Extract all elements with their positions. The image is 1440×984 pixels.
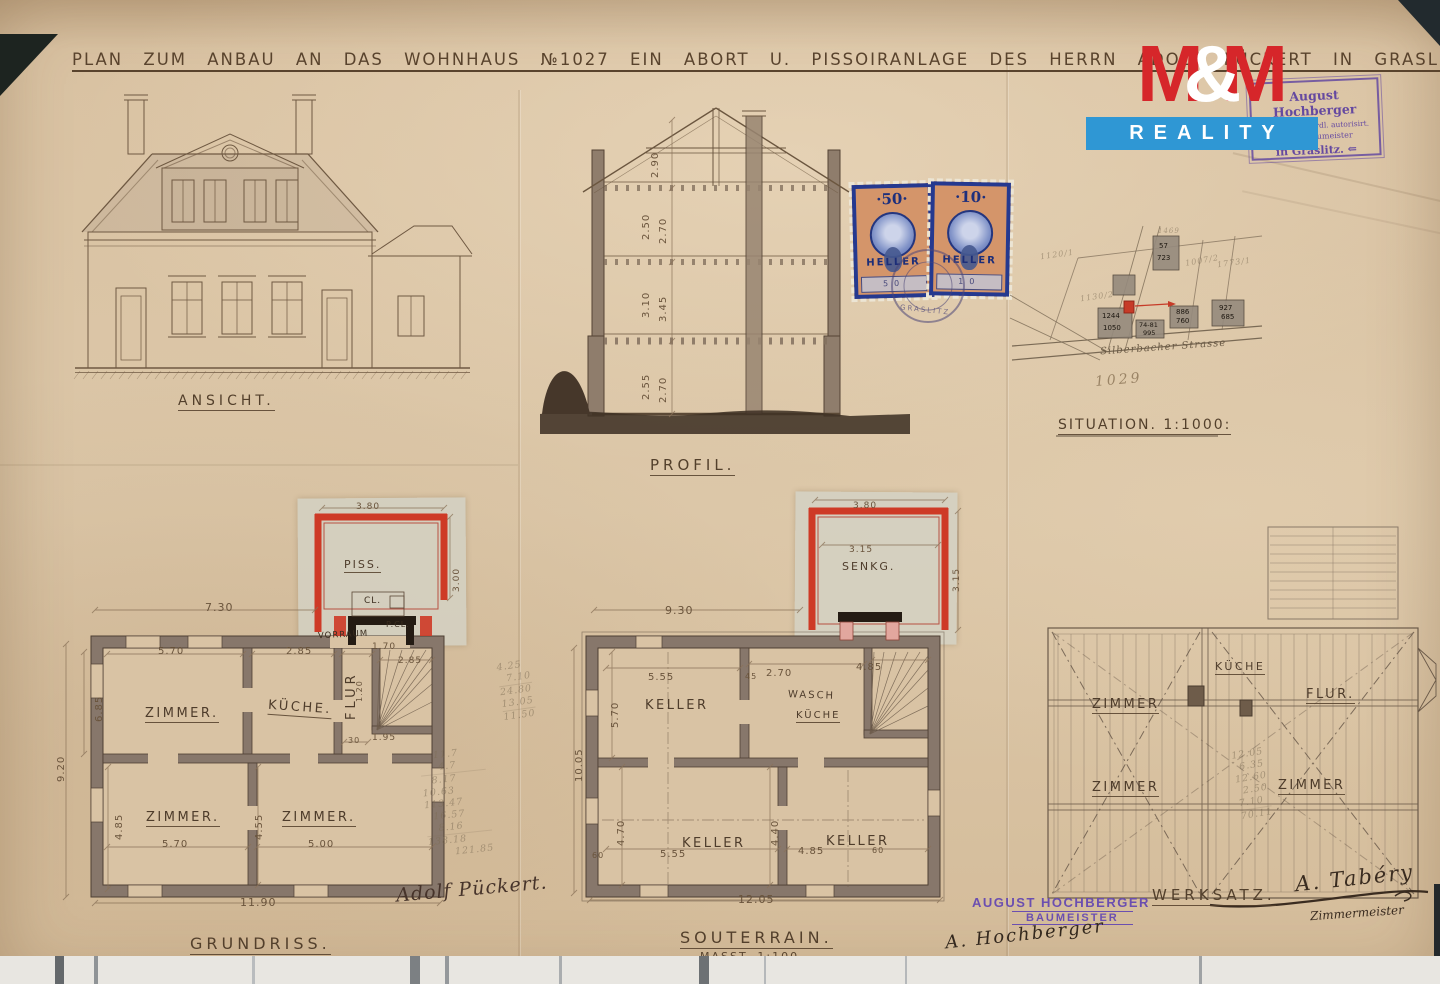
room-keller: KELLER <box>645 698 708 713</box>
revenue-stamp-10-heller: ·10· HELLER 10 <box>929 181 1011 296</box>
stamp-unit: HELLER <box>857 256 929 269</box>
scan-edge-right <box>1434 884 1440 958</box>
mm-reality-watermark: M&M <box>1097 36 1321 112</box>
grundriss-dim: 1.70 <box>372 642 396 652</box>
pencil-calculation: 11.7 4.7 8.17 10.63 113.47 16.57 8.16 13… <box>418 745 494 860</box>
grundriss-addition-patch <box>297 497 466 646</box>
pencil-calculation: 12.05 6.35 12.60 2.50 7.10 70.11 <box>1231 746 1274 822</box>
owner-signature: Adolf Pückert. <box>395 871 548 906</box>
souterrain-dim: 2.70 <box>766 668 792 679</box>
baumeister-stamp-name: AUGUST HOCHBERGER <box>972 895 1150 910</box>
stamp-unit: HELLER <box>934 254 1006 266</box>
plot-number: 1029 <box>1094 370 1143 390</box>
right-ink-signature-title: Zimmermeister <box>1310 903 1405 924</box>
profil-label: PROFIL. <box>650 456 735 476</box>
right-ink-signature: A. Tabéry <box>1294 860 1415 896</box>
reality-label: REALITY <box>1119 122 1285 145</box>
souterrain-dim: 3.80 <box>853 501 877 511</box>
grundriss-dim: 7.30 <box>205 601 234 614</box>
souterrain-dim: 3.15 <box>952 568 962 592</box>
house-number: 886 <box>1176 308 1189 316</box>
house-number: 1244 <box>1102 312 1120 320</box>
souterrain-dim: 4.40 <box>770 820 781 846</box>
room-wasch: WASCH <box>788 689 835 702</box>
pencil-calculation: 4.25 7.10 24.80 13.05 11.50 <box>496 658 537 723</box>
grundriss-label: GRUNDRISS. <box>190 934 331 955</box>
grundriss-dim: 4.85 <box>114 814 125 840</box>
grundriss-dim: 3.80 <box>356 502 380 512</box>
grundriss-dim: 30 <box>348 736 360 745</box>
room-zimmer: ZIMMER. <box>282 810 356 827</box>
logo-ampersand: & <box>1184 29 1235 118</box>
stamp-value-10: ·10· <box>935 187 1007 206</box>
profil-dim: 3.10 <box>641 292 652 318</box>
werksatz-label: WERKSATZ. <box>1152 886 1276 906</box>
souterrain-dim: 60 <box>872 846 884 855</box>
stamp-value-50: ·50· <box>856 189 928 209</box>
elevation-windows <box>168 276 306 337</box>
revenue-stamp-50-heller: ·50· HELLER 50 <box>852 183 935 299</box>
grundriss-dim: 2.85 <box>286 646 312 657</box>
parcel-number: 1773/1 <box>1217 256 1252 270</box>
grundriss-dim: 11.90 <box>240 896 277 909</box>
room-cl: CL. <box>364 596 381 606</box>
situation-buildings <box>1098 236 1244 338</box>
room-zimmer: ZIMMER. <box>145 706 219 723</box>
house-number: 57 <box>1159 242 1168 250</box>
profil-dim: 2.70 <box>658 377 669 403</box>
grundriss-dim: 5.70 <box>162 839 188 850</box>
grundriss-windows <box>91 636 444 897</box>
house-number: 723 <box>1157 254 1170 262</box>
parcel-number: 1469 <box>1158 227 1180 235</box>
souterrain-label: SOUTERRAIN. <box>680 928 833 949</box>
souterrain-dim: 12.05 <box>738 893 775 906</box>
scan-edge-strip <box>0 956 1440 984</box>
chimney <box>1240 700 1252 716</box>
ansicht-drawing <box>74 95 472 379</box>
stamp-bottom-panel: 50 <box>861 275 927 293</box>
house-number: 760 <box>1176 317 1189 325</box>
house-number: 995 <box>1143 329 1155 337</box>
plan-sheet: ·50· HELLER 50 ·10· HELLER 10 <box>0 0 1440 984</box>
stamp-bottom-panel: 10 <box>936 273 1002 290</box>
profil-dim: 2.55 <box>641 374 652 400</box>
grundriss-dim: 5.70 <box>158 646 184 657</box>
room-zimmer: ZIMMER <box>1278 778 1345 795</box>
souterrain-dim: 4.85 <box>856 662 882 673</box>
souterrain-dim: 45 <box>745 672 757 681</box>
profil-dim: 2.70 <box>658 218 669 244</box>
grundriss-dim: 1.95 <box>372 733 396 743</box>
room-keller: KELLER <box>682 836 745 851</box>
souterrain-windows <box>586 636 940 897</box>
grundriss-dim: 2.85 <box>398 656 422 666</box>
house-number: 1050 <box>1103 324 1121 332</box>
souterrain-dim: 60 <box>592 851 604 860</box>
souterrain-dim: 3.15 <box>849 545 873 555</box>
souterrain-dim: 5.55 <box>660 849 686 860</box>
grundriss-dim: 3.00 <box>452 568 462 592</box>
souterrain-dim: 5.55 <box>648 672 674 683</box>
fold-crease-horizontal <box>0 464 518 466</box>
profil-dim: 2.50 <box>641 214 652 240</box>
parcel-number: 1007/2 <box>1184 253 1219 268</box>
postmark-text: GRASLITZ <box>900 303 951 316</box>
situation-label: SITUATION. 1:1000: <box>1058 417 1231 435</box>
street-name: Silberbacher Strasse <box>1100 338 1227 358</box>
emperor-medallion-icon <box>869 211 916 258</box>
new-abort-building-marker <box>1124 301 1134 313</box>
room-zimmer: ZIMMER <box>1092 780 1159 797</box>
room-senkgrube: SENKG. <box>842 560 895 573</box>
grundriss-dim: 1.20 <box>355 680 364 702</box>
grundriss-dim: 9.20 <box>56 756 67 782</box>
room-flur: FLUR. <box>1306 687 1355 704</box>
grundriss-dim: 6.85 <box>94 696 105 722</box>
room-kueche: KÜCHE. <box>267 698 332 719</box>
emperor-medallion-icon <box>947 210 994 257</box>
grundriss-dim: 5.00 <box>308 839 334 850</box>
scan-corner-top-right <box>1398 0 1440 46</box>
house-number: 685 <box>1221 313 1234 321</box>
room-kueche: KÜCHE <box>1215 660 1265 675</box>
profil-dim: 2.90 <box>650 152 661 178</box>
souterrain-dim: 9.30 <box>665 604 694 617</box>
grundriss-dim: 4.55 <box>254 814 265 840</box>
reality-banner: REALITY <box>1086 117 1318 150</box>
souterrain-dim: 5.70 <box>610 702 621 728</box>
room-zimmer: ZIMMER <box>1092 697 1159 714</box>
house-number: 74-81 <box>1139 321 1158 329</box>
chimney <box>1188 686 1204 706</box>
ansicht-label: ANSICHT. <box>178 393 275 411</box>
room-kueche: KÜCHE <box>796 710 840 723</box>
terrace-grid <box>1268 527 1398 619</box>
souterrain-dim: 4.85 <box>798 846 824 857</box>
house-number: 927 <box>1219 304 1232 312</box>
souterrain-dim: 10.05 <box>574 748 585 782</box>
fold-crease-diagonal-2 <box>1242 190 1440 236</box>
profil-dim: 3.45 <box>658 296 669 322</box>
souterrain-dim: 4.70 <box>616 820 627 846</box>
room-zimmer: ZIMMER. <box>146 810 220 827</box>
scan-corner-top-left <box>0 34 58 96</box>
fold-crease-vertical-left <box>518 90 520 956</box>
room-pcl: P.CL. <box>386 620 410 629</box>
room-piss: PISS. <box>344 558 381 573</box>
parcel-number: 1120/1 <box>1040 248 1075 262</box>
parcel-number: 1130/2 <box>1080 290 1115 304</box>
